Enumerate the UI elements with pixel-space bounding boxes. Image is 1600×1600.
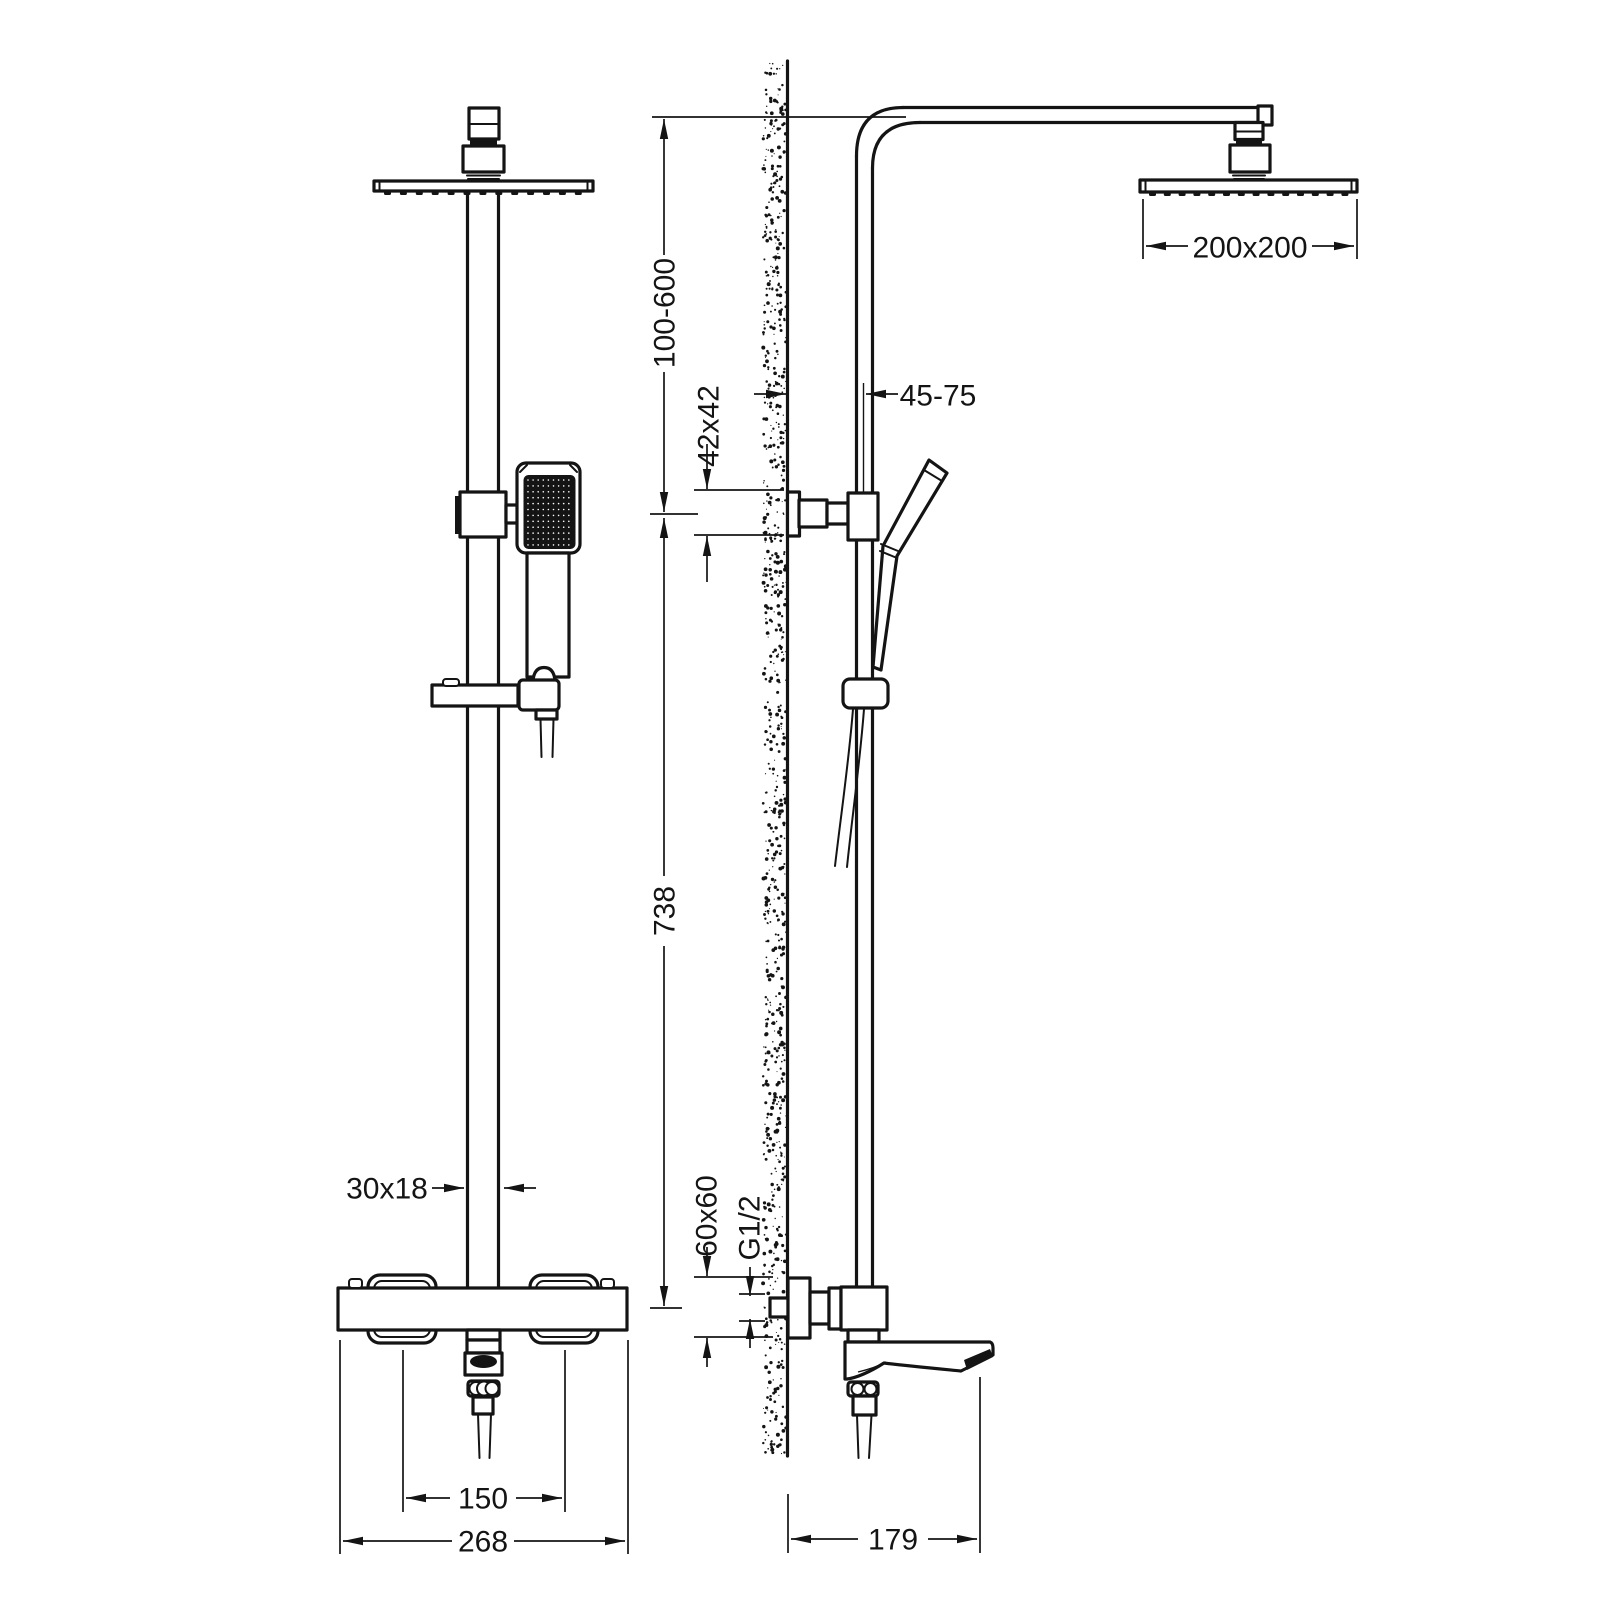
shower-column-drawing: 100-600 42x42 45-75 200x200 738 30x18 60…: [0, 0, 1600, 1600]
technical-drawing: 100-600 42x42 45-75 200x200 738 30x18 60…: [0, 0, 1600, 1600]
dim-label-spout-reach: 179: [868, 1524, 918, 1557]
riser-pipe-side: [857, 106, 1273, 1287]
dim-label-thread: G1/2: [734, 1195, 767, 1260]
safety-button-left: [349, 1279, 362, 1288]
wall-flange: [788, 1278, 810, 1338]
overhead-shower-front: [374, 108, 593, 195]
dim-label-pipe-profile: 30x18: [346, 1173, 428, 1206]
hand-shower-side: [873, 460, 947, 670]
dim-label-valve-width: 268: [458, 1526, 508, 1559]
dim-label-head-size: 200x200: [1192, 232, 1307, 265]
safety-button-right: [601, 1279, 614, 1288]
dim-label-handle-distance: 150: [458, 1483, 508, 1516]
thermostatic-valve-front: [338, 1275, 627, 1458]
riser-pipe-front: [468, 191, 499, 1288]
dim-label-wall-distance: 45-75: [900, 380, 977, 413]
side-view: [770, 106, 1357, 1458]
dim-label-bracket-size: 42x42: [693, 385, 726, 467]
hand-shower-front: [455, 463, 580, 677]
rail-holder-side: [835, 679, 888, 867]
rail-holder-front: [432, 668, 559, 758]
dim-label-valve-size: 60x60: [691, 1175, 724, 1257]
wall-bracket-side: [788, 492, 879, 540]
overhead-shower-side: [1140, 123, 1357, 197]
front-view: [338, 108, 627, 1458]
bath-valve-side: [770, 1278, 993, 1458]
wall-thread-nipple: [770, 1298, 788, 1317]
dim-label-column-height: 738: [649, 886, 682, 936]
dim-label-height-adjust: 100-600: [649, 258, 682, 368]
